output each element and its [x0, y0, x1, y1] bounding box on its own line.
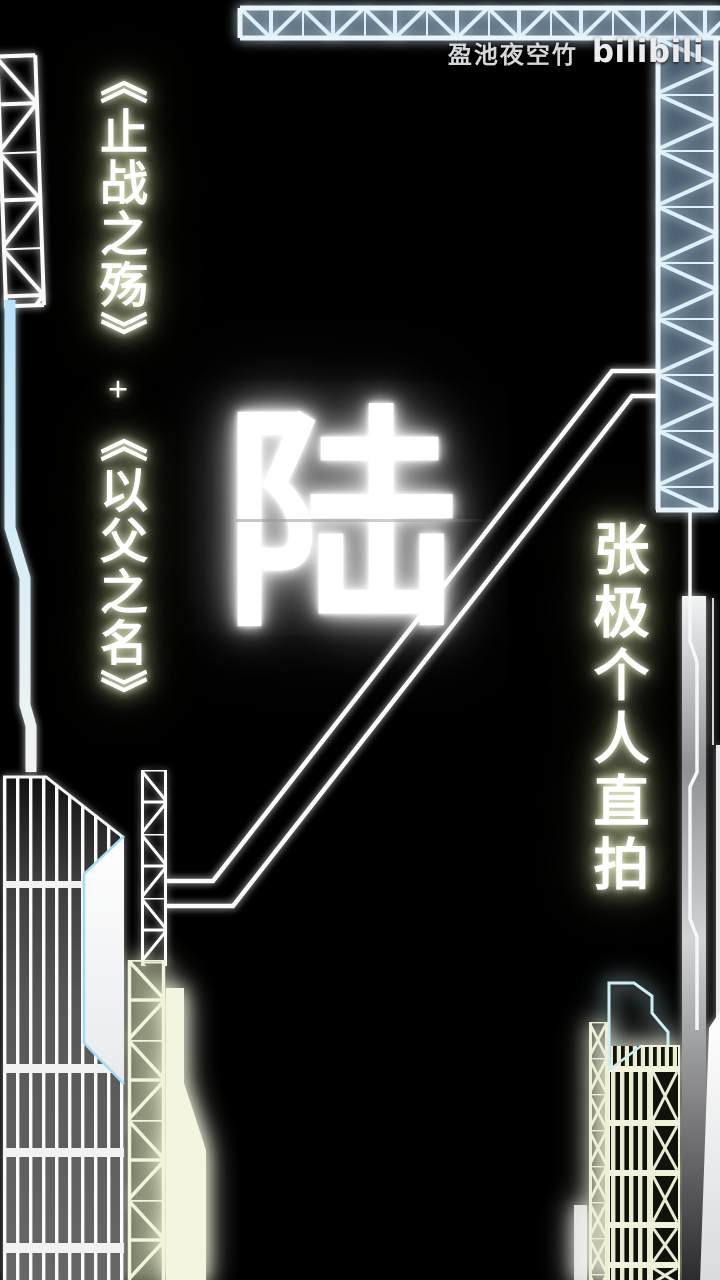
- watermark-bar: 盈池夜空竹 bilibili: [448, 34, 704, 70]
- topleft-white-truss: [0, 55, 44, 306]
- bottomleft-cream-truss: [128, 960, 206, 1280]
- uploader-name: 盈池夜空竹: [448, 35, 578, 70]
- song-title-secondary: 《以父之名》: [86, 414, 150, 720]
- bottomright-cream-building: [574, 983, 679, 1280]
- right-subtitle: 张极个人直拍: [585, 520, 647, 898]
- left-ribbon-line: [10, 300, 31, 772]
- video-cover: 陆 《止战之殇》 + 《以父之名》 张极个人直拍 盈池夜空竹 bilibili: [0, 0, 720, 1280]
- glitch-seam-line: [236, 519, 490, 522]
- bilibili-logo: bilibili: [592, 34, 704, 71]
- left-title-column: 《止战之殇》 + 《以父之名》: [86, 56, 150, 720]
- song-title-primary: 《止战之殇》: [86, 56, 150, 362]
- right-edge-neon-strip: [682, 510, 720, 1280]
- center-glyph: 陆: [222, 408, 460, 644]
- plus-separator: +: [108, 368, 129, 410]
